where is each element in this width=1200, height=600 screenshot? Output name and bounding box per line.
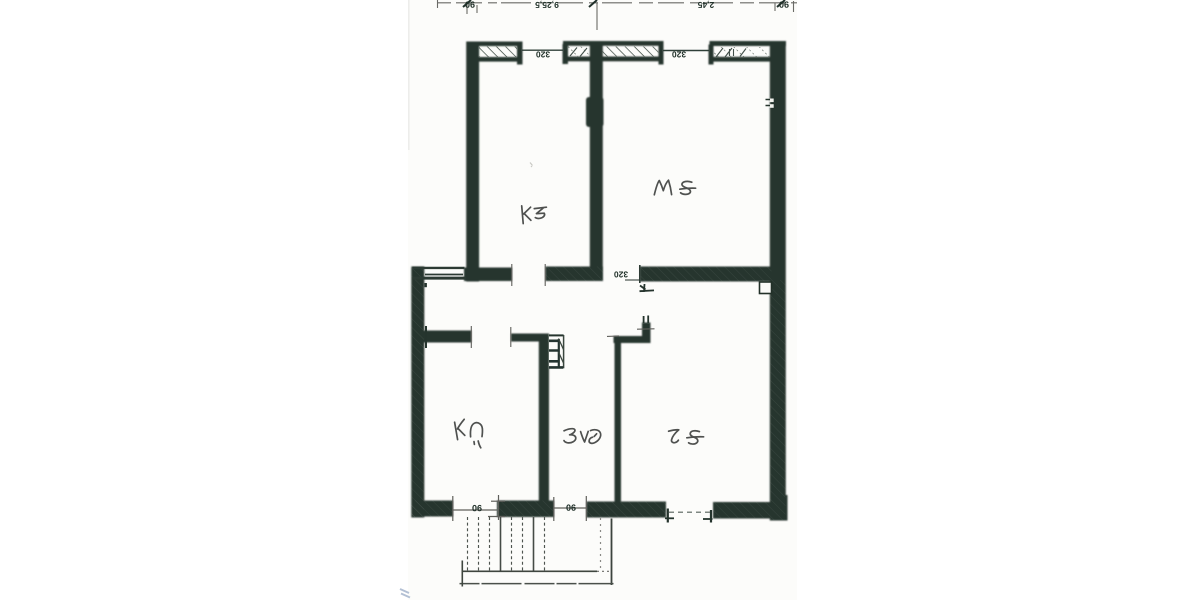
svg-text:320: 320 [672,49,686,59]
svg-text:90: 90 [465,0,475,10]
svg-text:9,25,5: 9,25,5 [535,0,559,10]
svg-text:90: 90 [779,0,789,10]
svg-text:2,45: 2,45 [697,0,714,10]
svg-text:320: 320 [536,49,550,59]
svg-text:90: 90 [472,503,482,513]
svg-text:320: 320 [614,269,628,279]
svg-text:90: 90 [566,503,576,513]
